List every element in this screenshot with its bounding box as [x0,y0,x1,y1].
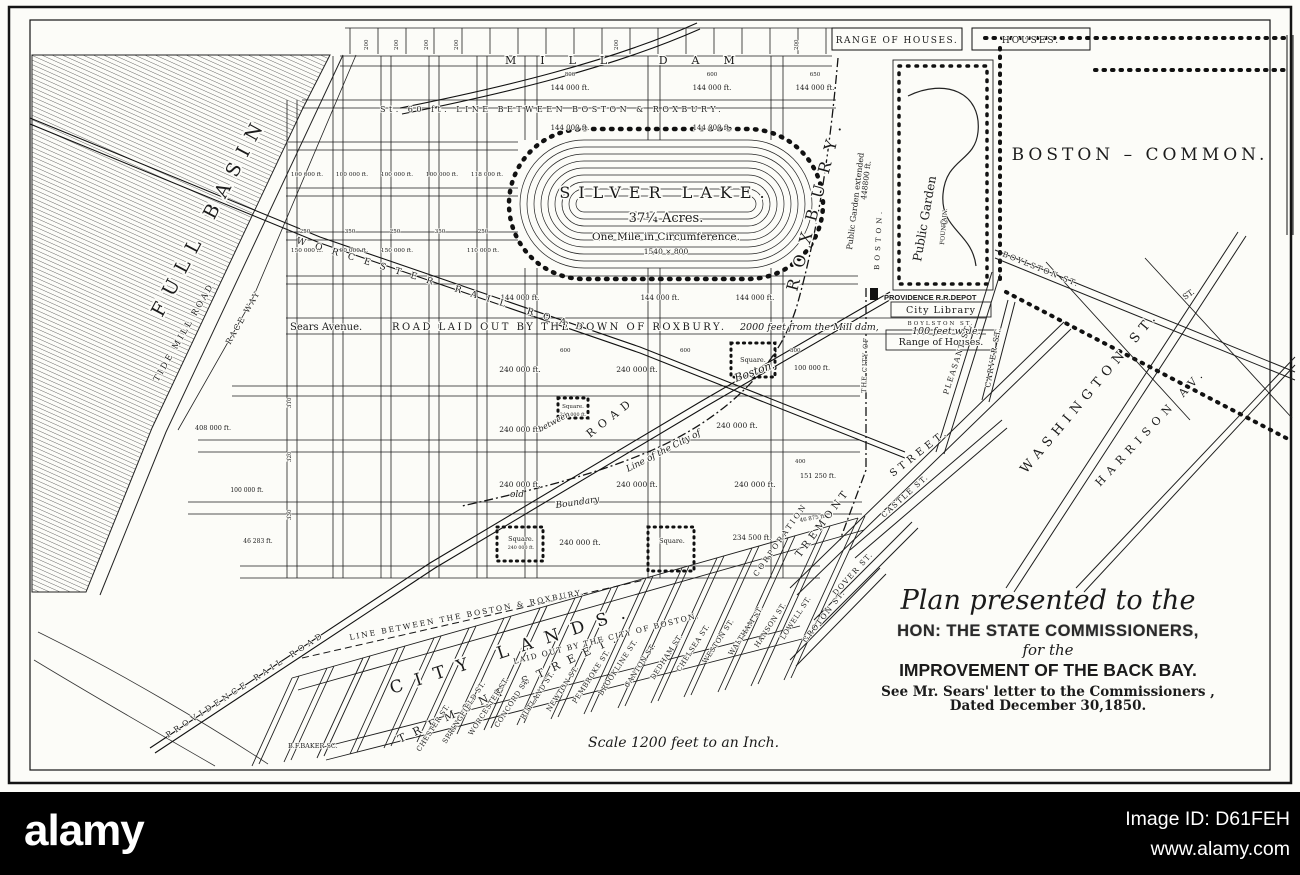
map-label: 100 000 ft. [794,364,830,372]
map-label: 250 [300,229,311,235]
label-mill-dam: MILL DAM [505,54,759,67]
map-label: 144 000 ft. [796,84,835,92]
map-label: 400 [795,459,806,465]
title-cartouche: Plan presented to the HON: THE STATE COM… [872,586,1224,714]
map-label: 144 000 ft. [693,124,732,132]
label-scale: Scale 1200 feet to an Inch. [588,735,779,751]
map-label: 240 000 ft. [616,365,658,374]
label-boylston-diag: BOYLSTON ST. [1001,250,1081,289]
map-label: 2000 feet from the Mill dam, [739,322,879,333]
map-label: Line of the City of [624,428,704,475]
label-fountain: FOUNTAIN. [939,208,949,245]
map-label: 200 [794,39,800,50]
label-city-of: THE CITY OF [860,337,870,393]
label-square-2: Square. [508,535,534,543]
map-label: between [537,410,572,434]
map-label: 330 [287,509,293,520]
label-road-diag: ROAD [584,394,638,440]
map-label: 800 [790,348,801,354]
watermark-bar: alamy Image ID: D61FEH www.alamy.com [0,792,1300,875]
map-label: 200 [454,39,460,50]
silver-lake-name: SILVER LAKE. [559,183,772,202]
silver-lake-acres: 37¼ Acres. [629,211,704,226]
silver-lake [509,129,823,279]
title-line-for-the: for the [872,642,1224,659]
map-label: 650 [810,72,821,78]
label-city-library: City Library [906,305,976,316]
map-label: 151 250 ft. [800,472,836,480]
title-line-improvement: IMPROVEMENT OF THE BACK BAY. [872,661,1224,680]
shoreline-curves [34,632,268,766]
map-label: 46 283 ft. [243,538,273,545]
map-label: Boundary [554,495,601,511]
map-label: 100 000 ft. [291,172,323,178]
title-line-commissioners: HON: THE STATE COMMISSIONERS, [872,622,1224,640]
map-label: 100 000 ft. [381,172,413,178]
label-washington: WASHINGTON ST. [1018,308,1163,477]
map-label: 600 [707,72,718,78]
map-label: 600 [560,348,571,354]
map-label: 240 000 ft. [508,545,535,551]
map-label: 144 000 ft. [693,84,732,92]
map-label: 150 000 ft. [381,248,413,254]
map-label: 320 [287,451,293,462]
map-page: RANGE OF HOUSES.HOUSES.MILL DAMSt. 60 ft… [0,0,1300,792]
map-label: 100 000 ft. [230,487,263,494]
providence-depot-mark [870,288,878,300]
label-boston-common: BOSTON – COMMON. [1012,145,1269,165]
map-label: 350 [345,229,356,235]
image-id-text: Image ID: D61FEH [1125,804,1290,834]
label-sears-avenue: Sears Avenue. [290,322,362,333]
map-label: 408 000 ft. [195,424,231,432]
map-label: 144 000 ft. [736,294,775,302]
map-label: 118 000 ft. [471,172,503,178]
map-label: 100 000 ft. [336,172,368,178]
map-label: 100 000 ft. [426,172,458,178]
alamy-logo[interactable]: alamy [24,806,144,856]
map-label: 350 [435,229,446,235]
label-houses: HOUSES. [1002,36,1060,46]
label-square-3: Square. [659,537,685,545]
map-label: 240 000 ft. [499,425,541,434]
label-carver: CARVER ST. [983,326,1003,389]
silver-lake-dimensions: 1540 × 800 [644,247,689,256]
title-line-dated: Dated December 30,1850. [872,699,1224,714]
label-harrison: HARRISON AV. [1093,365,1210,489]
boundary-lines [302,58,866,658]
alamy-url[interactable]: www.alamy.com [1125,834,1290,864]
label-castle: CASTLE ST. [879,472,930,519]
map-label: 800 [565,72,576,78]
map-label: 250 [478,229,489,235]
map-label: old [510,490,524,500]
map-label: 310 [287,397,293,408]
map-label: 200 [364,39,370,50]
map-label: 240 000 ft. [499,480,541,489]
title-line-script: Plan presented to the [872,586,1224,616]
map-label: 200 [614,39,620,50]
label-providence-depot: PROVIDENCE R.R.DEPOT [884,293,977,302]
map-label: 234 500 ft. [733,534,772,542]
map-label: 144 000 ft. [551,124,590,132]
label-range-houses-2: Range of Houses. [899,337,984,348]
label-boston-small: BOSTON. [873,208,884,270]
label-public-garden: Public Garden [910,174,939,262]
map-label: 240 000 ft. [499,365,541,374]
label-range-of-houses: RANGE OF HOUSES. [836,36,959,46]
title-line-see-letter: See Mr. Sears' letter to the Commissione… [872,685,1224,700]
boston-common [832,28,1293,440]
map-label: 144 000 ft. [551,84,590,92]
map-label: 600 [680,348,691,354]
map-label: 200 [424,39,430,50]
map-label: 110 000 ft. [467,248,499,254]
map-label: 250 [390,229,401,235]
map-label: 240 000 ft. [616,480,658,489]
silver-lake-circumference: One Mile in Circumference. [592,231,740,243]
map-label: 240 000 ft. [734,480,776,489]
label-square-small: Square. [562,404,584,410]
label-providence-rr: PROVIDENCE RAIL ROAD [164,630,327,740]
label-roxbury-big: ROXBURY. [783,112,849,293]
label-st60-line: St. 60 ft. LINE BETWEEN BOSTON & ROXBURY… [380,105,724,114]
map-label: 240 000 ft. [716,421,758,430]
map-label: 240 000 ft. [559,538,601,547]
map-label: 144 000 ft. [641,294,680,302]
label-engraver: B.F.BAKER SC. [288,742,338,750]
map-label: 200 [394,39,400,50]
